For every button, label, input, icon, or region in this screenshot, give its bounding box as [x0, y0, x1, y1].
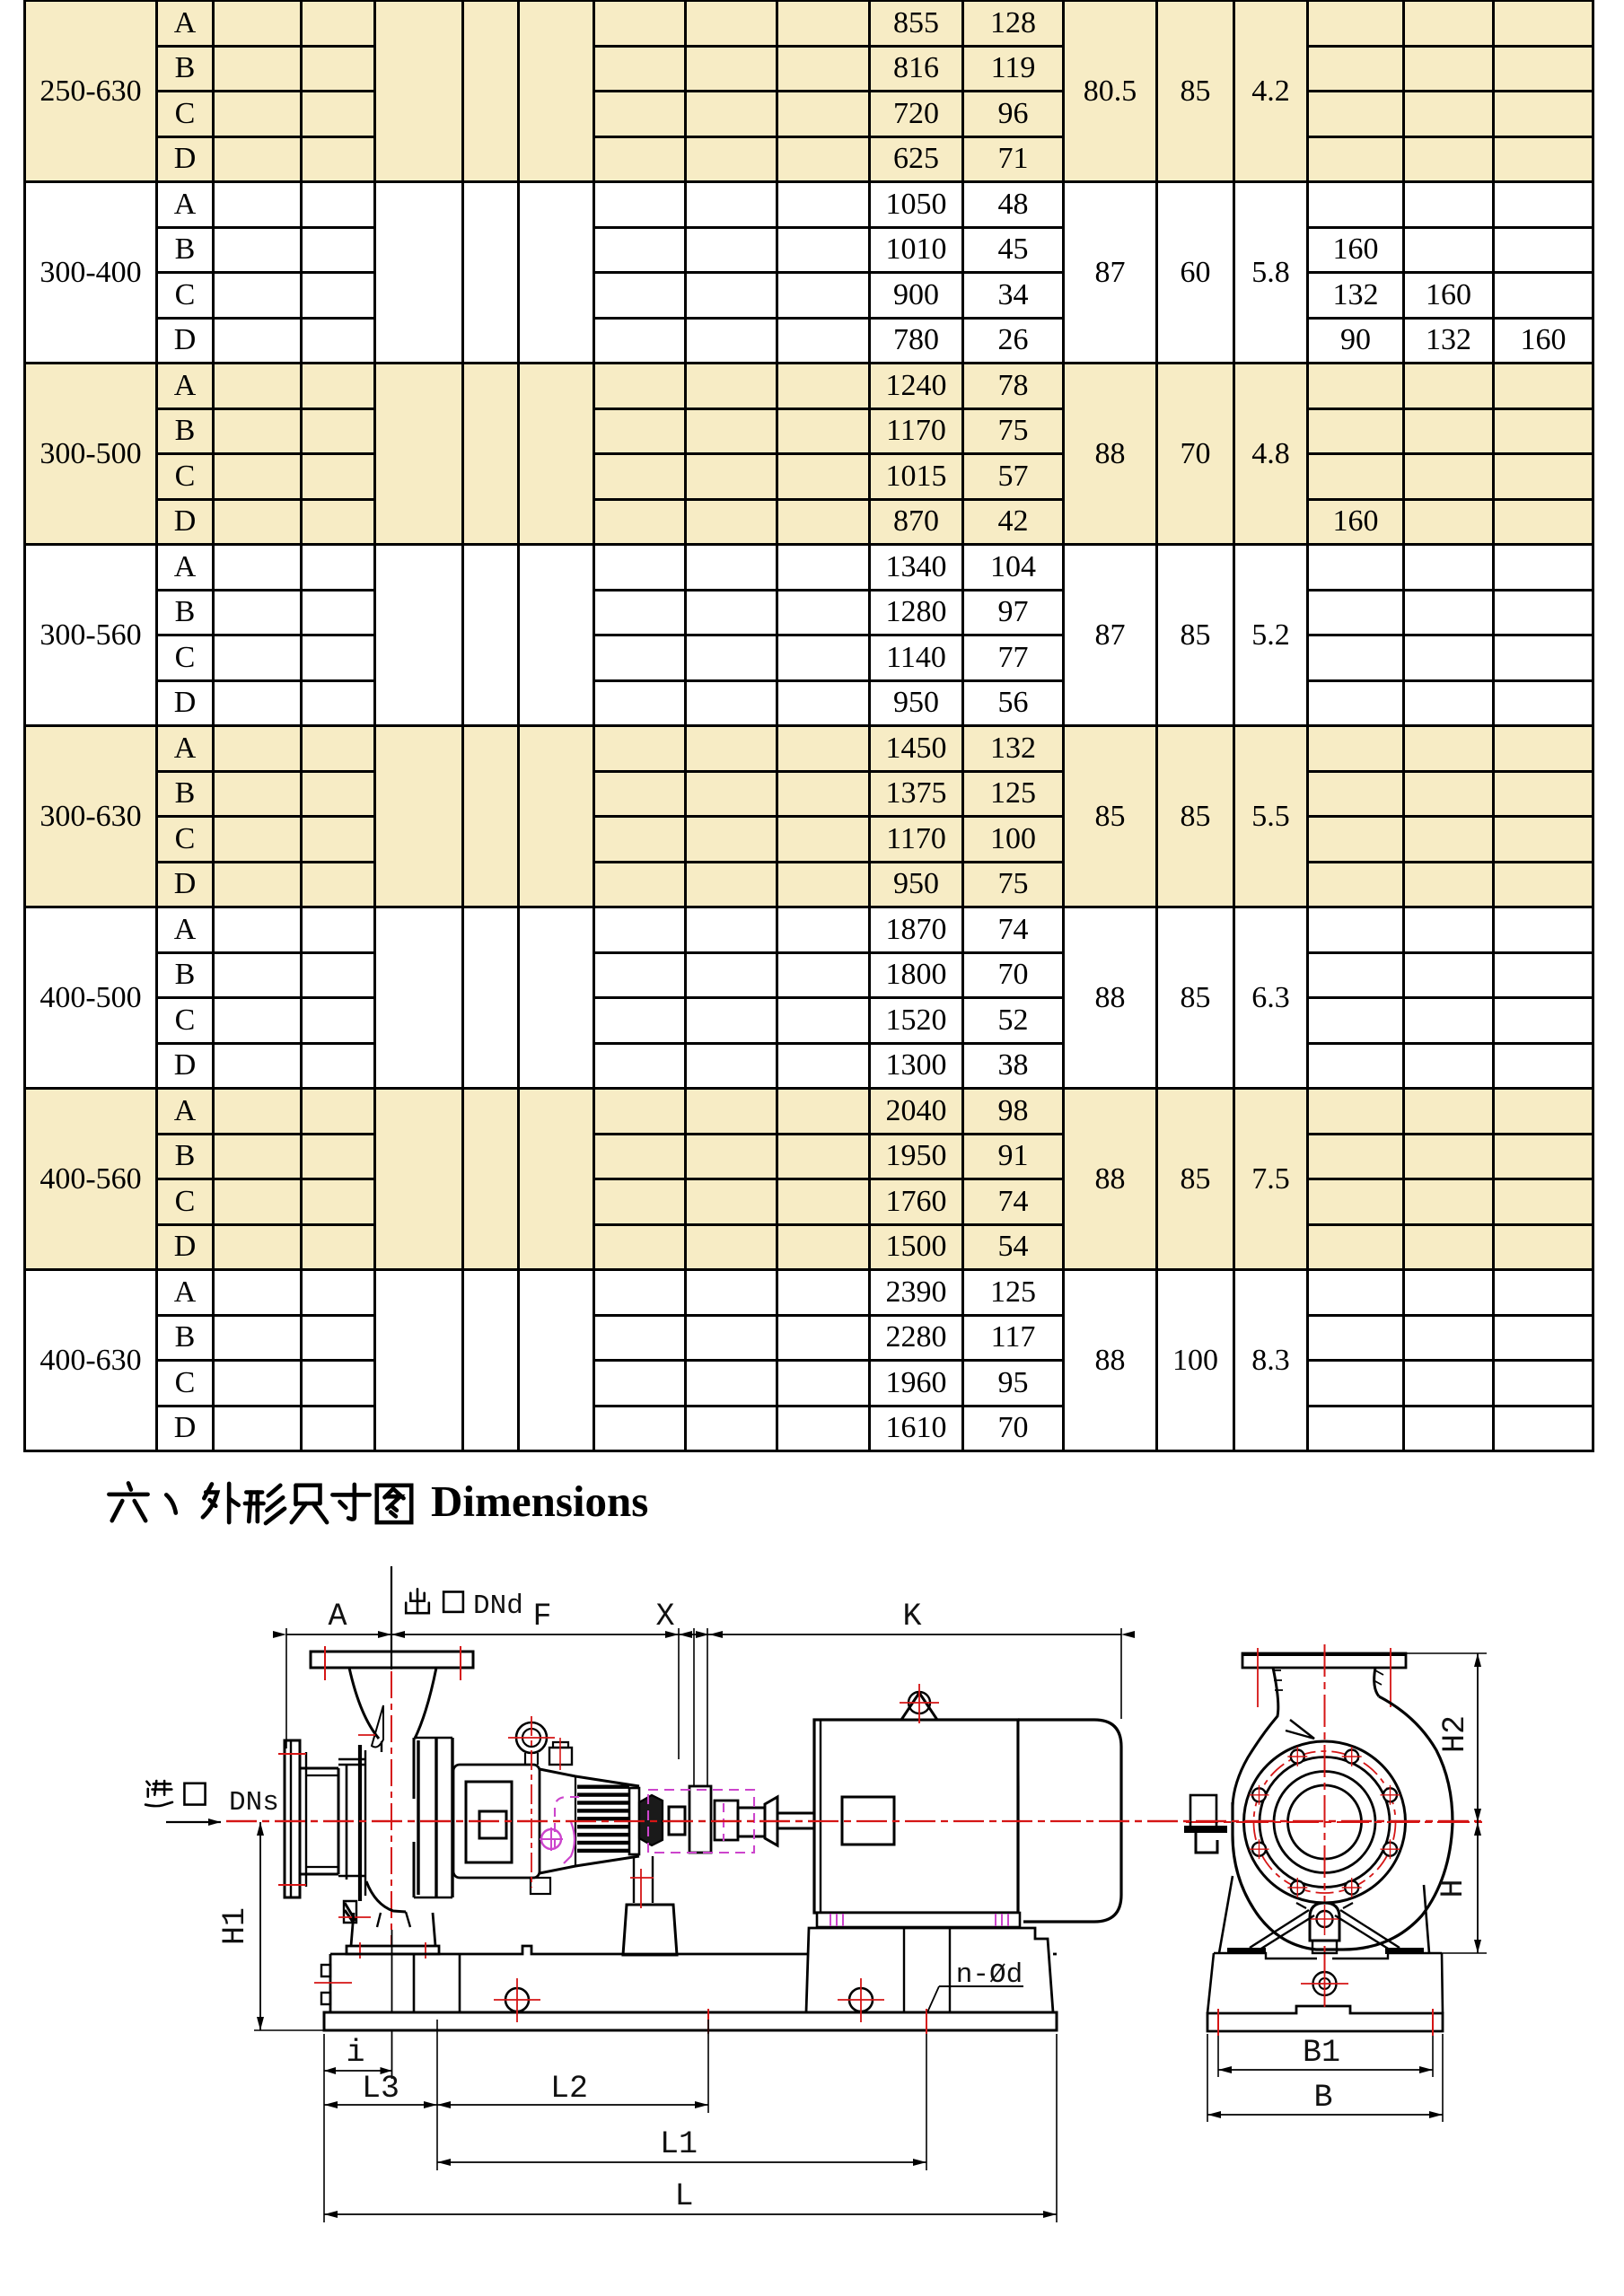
- svg-text:A: A: [328, 1599, 347, 1634]
- svg-text:B: B: [1313, 2080, 1332, 2116]
- svg-text:B1: B1: [1303, 2035, 1340, 2071]
- svg-text:DNs: DNs: [229, 1787, 279, 1818]
- svg-text:K: K: [902, 1599, 921, 1634]
- svg-text:H: H: [1435, 1879, 1471, 1897]
- svg-text:H1: H1: [217, 1907, 253, 1945]
- svg-text:L3: L3: [362, 2071, 399, 2107]
- svg-text:i: i: [346, 2035, 364, 2071]
- svg-text:X: X: [655, 1599, 674, 1634]
- svg-text:H2: H2: [1437, 1715, 1473, 1753]
- svg-text:L2: L2: [550, 2071, 588, 2107]
- svg-text:L: L: [674, 2178, 693, 2214]
- svg-text:L1: L1: [660, 2126, 698, 2162]
- svg-text:F: F: [532, 1599, 551, 1634]
- svg-text:DNd: DNd: [473, 1591, 523, 1622]
